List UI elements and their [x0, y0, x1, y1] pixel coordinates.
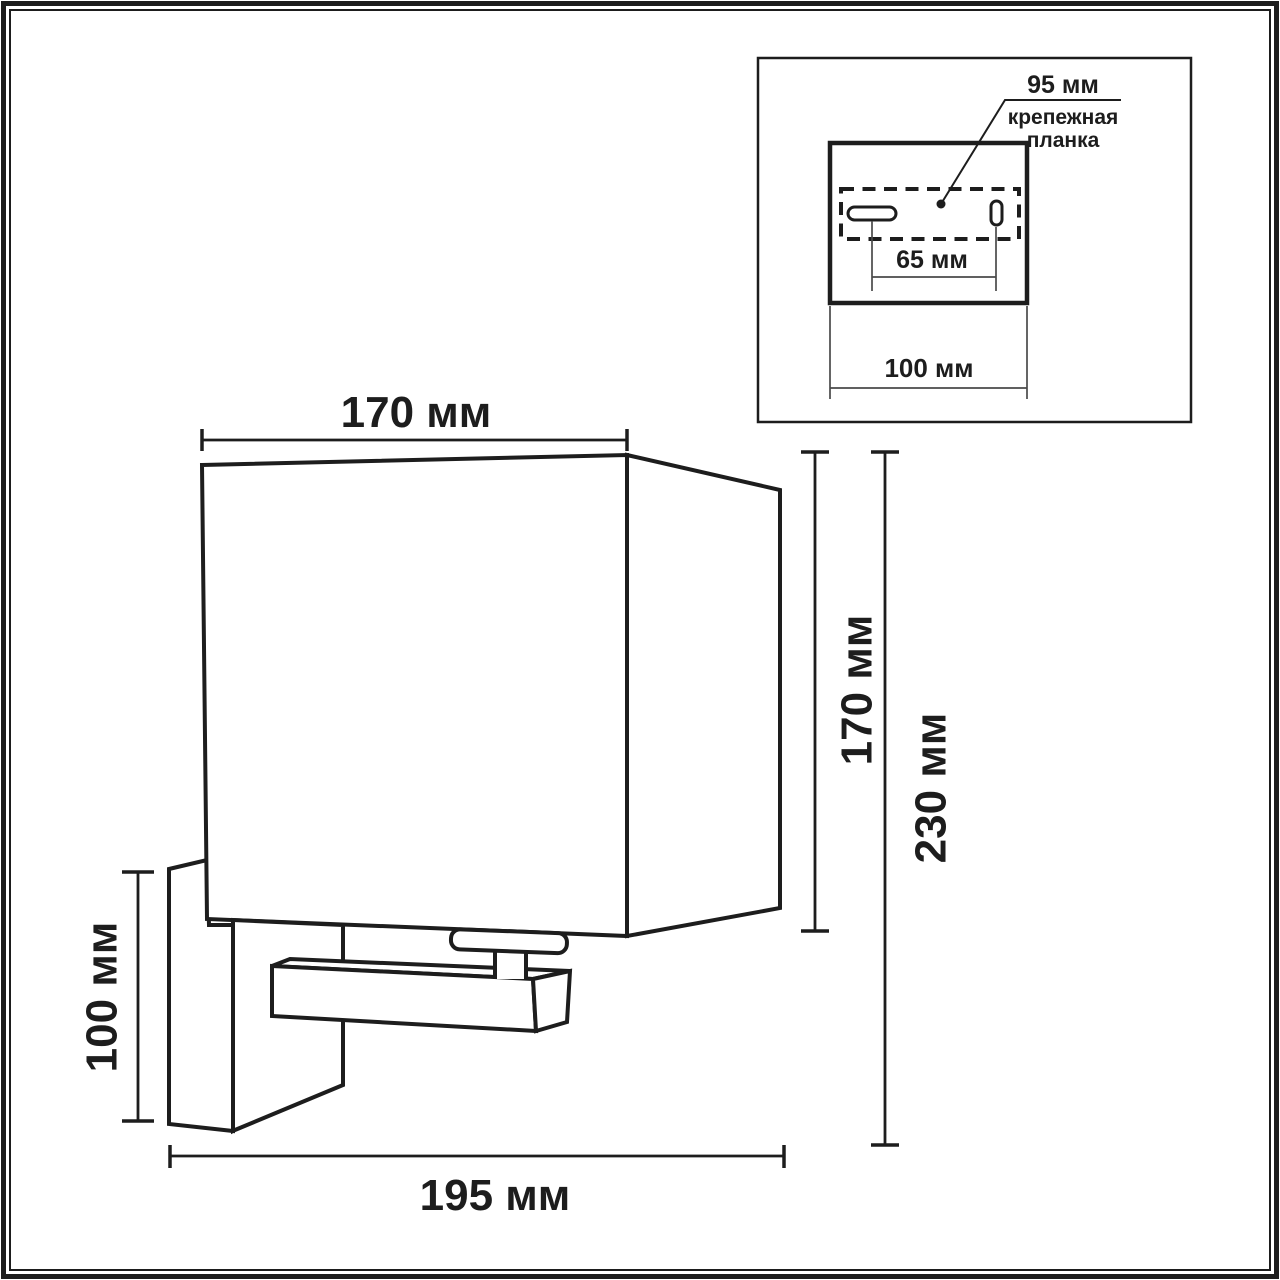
inset-keyhole-slot	[848, 207, 896, 220]
plate-name-line2: планка	[1027, 129, 1100, 152]
dimension-total-height: 230 мм	[871, 452, 955, 1145]
shade-height-label: 170 мм	[832, 615, 881, 766]
lampshade-side-face	[627, 455, 780, 936]
plate-width-label: 95 мм	[1027, 71, 1099, 99]
dimension-shade-width: 170 мм	[202, 388, 627, 451]
sconce-drawing	[169, 455, 780, 1131]
plate-name-line1: крепежная	[1008, 106, 1119, 129]
shade-width-label: 170 мм	[341, 388, 492, 437]
backplate-height-label: 100 мм	[77, 922, 126, 1073]
bracket-foot	[233, 920, 343, 1131]
leader-dot	[937, 200, 946, 209]
total-height-label: 230 мм	[906, 713, 955, 864]
technical-drawing: 170 мм 170 мм 230 мм 100 мм 195 мм 95 мм	[0, 0, 1280, 1280]
mounting-detail-inset: 95 мм крепежная планка 65 мм 100 мм	[758, 58, 1191, 422]
dimension-depth: 195 мм	[170, 1145, 784, 1220]
base-width-label: 100 мм	[884, 353, 973, 383]
lampshade-front-face	[202, 455, 627, 936]
depth-label: 195 мм	[420, 1171, 571, 1220]
hole-spacing-label: 65 мм	[896, 246, 968, 274]
dimension-backplate-height: 100 мм	[77, 872, 154, 1121]
bracket-arm-end-face	[533, 971, 570, 1031]
lamp-holder-disc	[451, 929, 568, 953]
inset-screw-hole	[991, 201, 1002, 225]
dimension-shade-height: 170 мм	[801, 452, 881, 931]
